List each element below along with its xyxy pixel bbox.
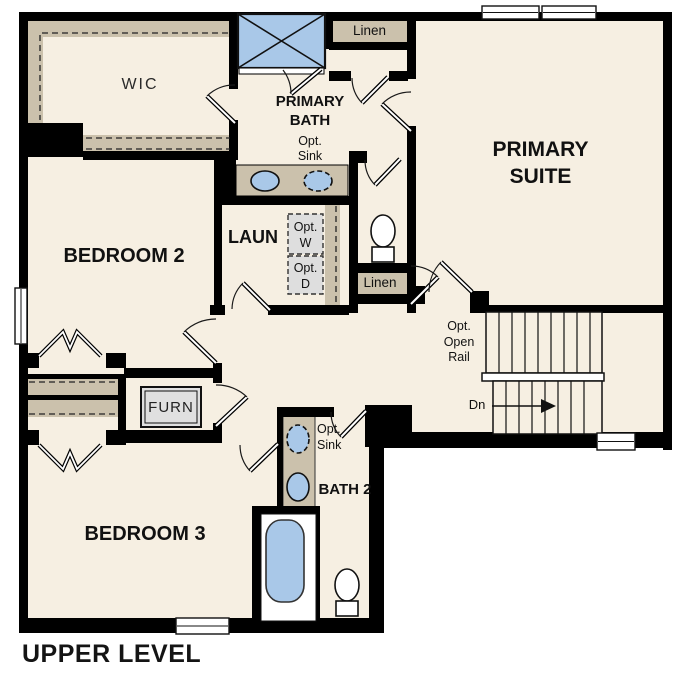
wall-laundry-bottom <box>268 305 349 315</box>
opt-open-rail-label: Opt. Open Rail <box>434 319 484 366</box>
sink-icon-bath2 <box>287 473 309 501</box>
bedroom3-label: BEDROOM 3 <box>58 523 232 546</box>
toilet-icon-bath2 <box>335 569 359 616</box>
wall-wc-bottom <box>349 263 412 273</box>
toilet-icon-water-closet <box>371 215 395 262</box>
window-bedroom3-bottom <box>176 618 229 634</box>
wall-closet-front-l3 <box>27 430 39 445</box>
primary-bath-opt-sink-label: Opt. Sink <box>291 134 329 164</box>
wall-hall-top-r <box>389 71 408 81</box>
stairs-down-label: Dn <box>464 398 490 413</box>
wall-hall-block-a <box>210 305 225 315</box>
wall-bath2-top <box>277 407 334 417</box>
wall-counter-bottom <box>222 196 351 205</box>
wic-shelf-left <box>28 21 43 123</box>
laundry-counter-strip <box>325 203 340 305</box>
window-suite-top-2 <box>542 6 596 19</box>
floor-plan: WIC PRIMARY BATH Opt. Sink Linen PRIMARY… <box>0 0 687 687</box>
wall-closet-divider <box>27 395 120 400</box>
bathtub-icon <box>261 514 316 621</box>
wall-right <box>663 12 672 450</box>
wic-label: WIC <box>100 76 180 94</box>
wall-vanity-left <box>277 410 283 512</box>
wall-furn-top <box>124 368 222 378</box>
wall-linen-hall-bottom <box>349 294 412 304</box>
wall-furn-bottom <box>112 430 222 443</box>
optional-sink-icon-primary <box>304 171 332 191</box>
optional-dryer-label: Opt. D <box>288 260 323 292</box>
primary-bath-label: PRIMARY BATH <box>263 92 357 130</box>
wall-wic-right-a <box>229 12 238 89</box>
wall-bath2-right <box>369 443 384 630</box>
wall-hall-top-l <box>329 71 351 81</box>
wall-closet-right <box>118 374 126 443</box>
wall-corner-block <box>365 405 412 447</box>
wall-closet-front-l2 <box>27 353 39 368</box>
wall-linen-top-bottom <box>329 42 410 50</box>
wall-closet-band-top <box>27 374 120 379</box>
stairs <box>482 312 604 434</box>
optional-sink-icon-bath2 <box>287 425 309 453</box>
linen-hall-label: Linen <box>351 275 409 291</box>
wall-closet-front-r2 <box>106 353 126 368</box>
wall-laundry-left <box>214 205 222 315</box>
wall-wic-block <box>20 123 83 157</box>
optional-washer-label: Opt. W <box>288 219 323 251</box>
wall-wc-stub <box>349 151 367 163</box>
furnace-label: FURN <box>141 399 201 416</box>
wic-shelf-top <box>28 21 229 37</box>
shower-icon <box>238 14 325 74</box>
wall-suite-bottom-block <box>470 291 489 313</box>
sink-icon-primary <box>251 171 279 191</box>
primary-suite-label: PRIMARY SUITE <box>478 136 603 190</box>
plan-level-title: UPPER LEVEL <box>22 640 322 669</box>
stairs-rail <box>482 373 604 381</box>
laundry-label: LAUN <box>224 227 282 248</box>
window-bedroom2-left <box>15 288 27 344</box>
window-stairhall <box>597 433 635 450</box>
bedroom2-label: BEDROOM 2 <box>38 245 210 268</box>
wall-suite-left-a <box>407 12 416 79</box>
bath2-opt-sink-label: Opt. Sink <box>317 421 353 453</box>
window-suite-top-1 <box>482 6 539 19</box>
bath2-label: BATH 2 <box>317 481 373 499</box>
linen-top-label: Linen <box>331 23 408 39</box>
stairs-upper-flight <box>486 312 602 373</box>
